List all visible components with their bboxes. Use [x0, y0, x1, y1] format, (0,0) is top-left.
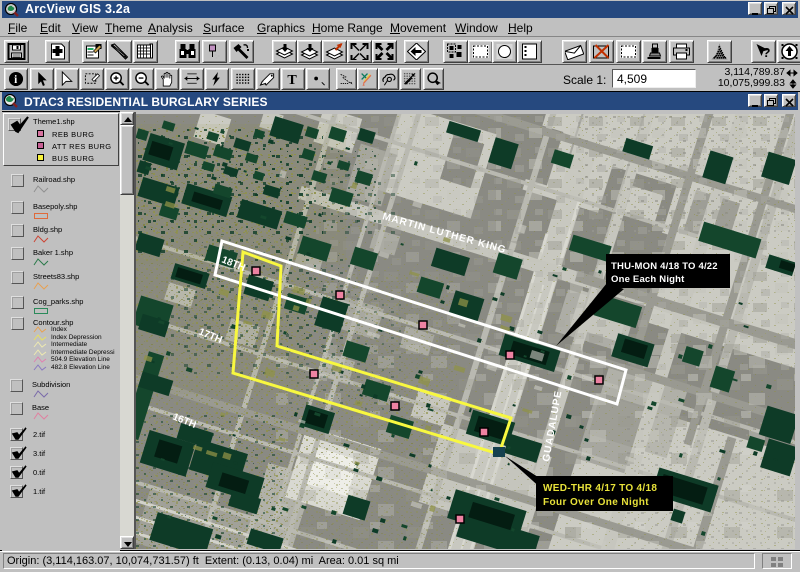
svg-text:T: T — [287, 72, 297, 87]
svg-text:i: i — [14, 74, 17, 86]
svg-text:?: ? — [763, 45, 771, 60]
svg-text:Four Over One Night: Four Over One Night — [543, 497, 649, 508]
svg-text:WED-THR 4/17 TO 4/18: WED-THR 4/17 TO 4/18 — [543, 483, 657, 494]
svg-text:One Each Night: One Each Night — [611, 274, 685, 285]
svg-text:THU-MON 4/18 TO 4/22: THU-MON 4/18 TO 4/22 — [611, 261, 718, 272]
